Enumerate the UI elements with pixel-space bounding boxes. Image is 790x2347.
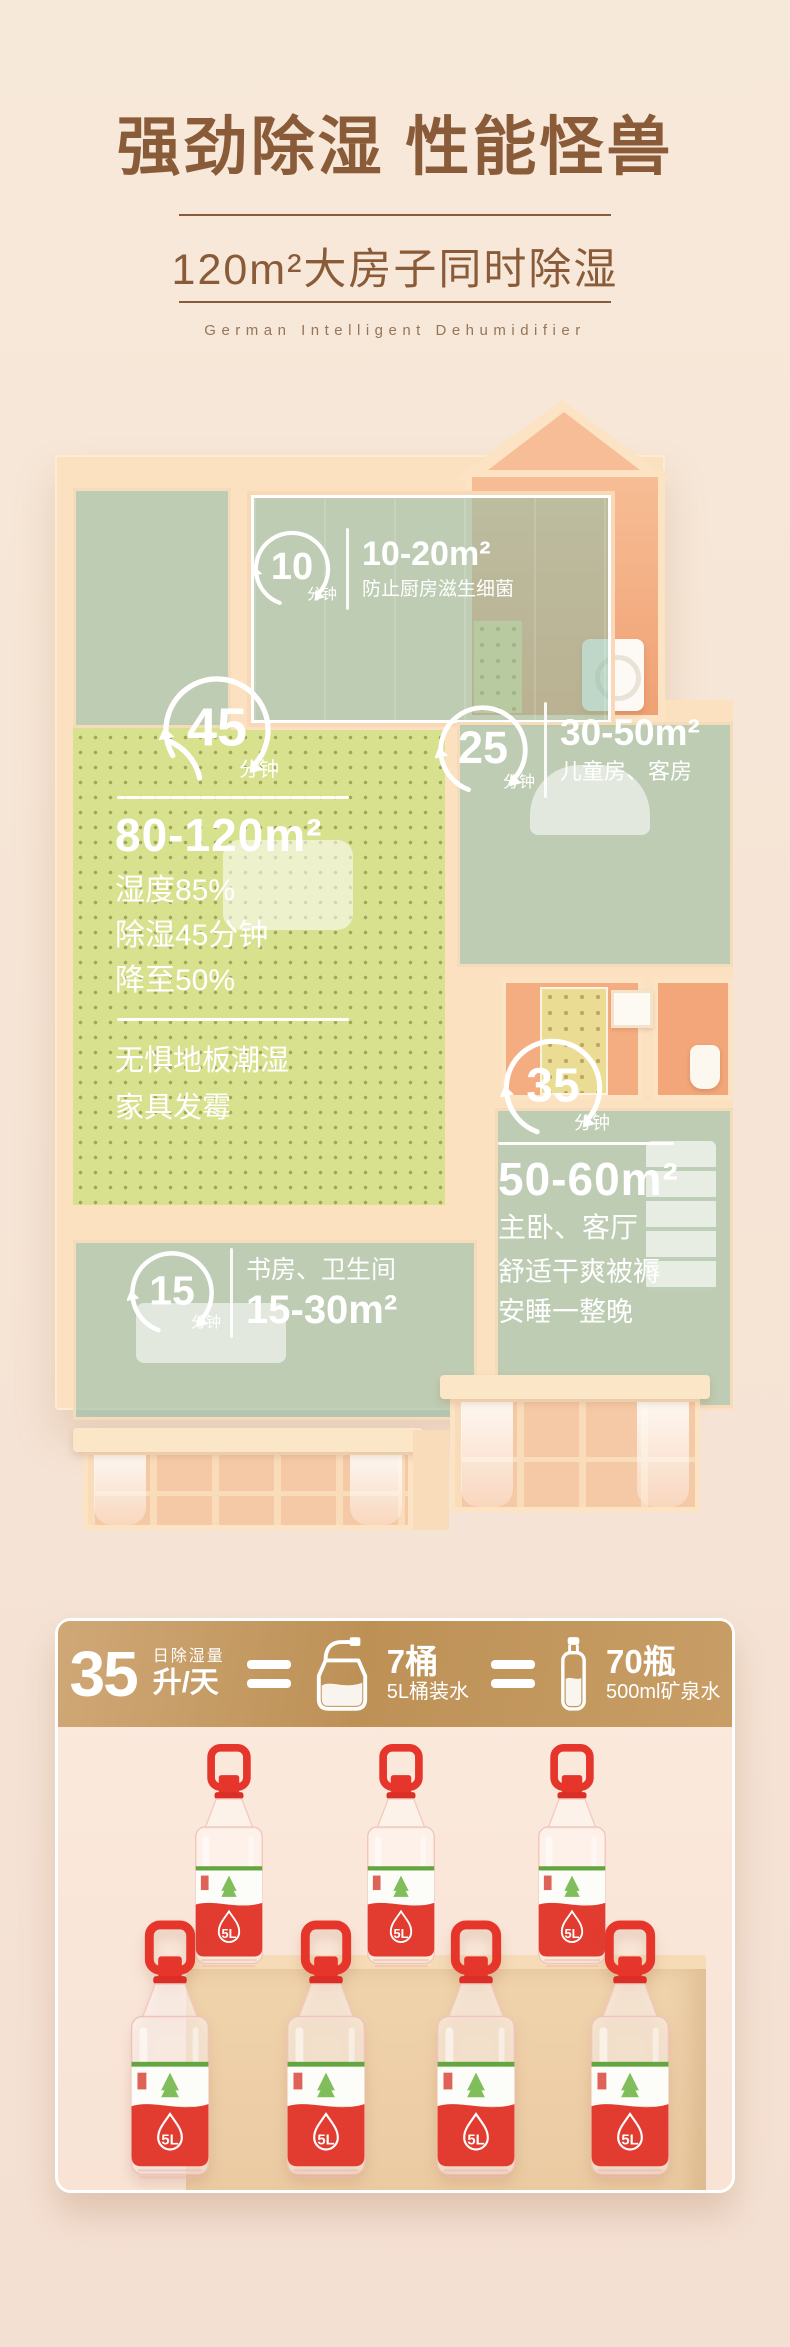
- capacity-label: 日除湿量: [153, 1648, 225, 1666]
- bathroom: [653, 978, 733, 1100]
- water-bottle-icon: [557, 1635, 590, 1713]
- annotation-study: 15 分钟 书房、卫生间 15-30m²: [127, 1248, 397, 1338]
- divider-top: [179, 214, 611, 216]
- annotation-rule: [117, 796, 349, 799]
- capacity-card: 35 日除湿量 升/天 7桶 5L桶装水: [55, 1618, 735, 2193]
- annotation-kids-room: 25 分钟 30-50m² 儿童房、客房: [435, 702, 700, 798]
- capacity-unit: 升/天: [153, 1667, 225, 1700]
- benefit-note: 安睡一整晚: [498, 1292, 633, 1332]
- timer-minutes: 15: [149, 1268, 195, 1315]
- water-jug-icon: [313, 1635, 371, 1713]
- equals-icon: [247, 1660, 291, 1688]
- page-title: 强劲除湿 性能怪兽: [0, 96, 790, 188]
- timer-minutes: 45: [187, 697, 247, 759]
- bottle-count: 70瓶: [606, 1644, 720, 1680]
- timer-icon-15min: 15 分钟: [127, 1248, 217, 1338]
- timer-icon-35min: 35 分钟: [500, 1035, 606, 1141]
- area-range: 30-50m²: [560, 713, 700, 753]
- capacity-header: 35 日除湿量 升/天 7桶 5L桶装水: [58, 1621, 732, 1727]
- result-stat: 降至50%: [115, 958, 235, 1003]
- timer-unit: 分钟: [191, 1311, 221, 1332]
- divider-bottom: [179, 301, 611, 303]
- tagline-english: German Intelligent Dehumidifier: [0, 322, 790, 339]
- equals-icon: [491, 1660, 535, 1688]
- benefit-note: 舒适干爽被褥: [498, 1252, 660, 1292]
- water-jug-5l: [585, 1917, 675, 2183]
- page-subtitle: 120m²大房子同时除湿: [0, 235, 790, 297]
- bottle-desc: 500ml矿泉水: [606, 1681, 720, 1704]
- water-jug-5l: [431, 1917, 521, 2183]
- facade-pillar: [413, 1430, 449, 1530]
- annotation-rule: [117, 1018, 349, 1021]
- area-desc: 主卧、客厅: [498, 1206, 638, 1246]
- annotation-divider: [230, 1248, 233, 1338]
- balcony-awning-right: [440, 1375, 710, 1399]
- jug-desc: 5L桶装水: [387, 1681, 469, 1704]
- area-desc: 儿童房、客房: [560, 758, 700, 787]
- water-jug-5l: [362, 1741, 440, 1971]
- daily-capacity-value: 35: [70, 1642, 137, 1706]
- floorplan-illustration: 10 分钟 10-20m² 防止厨房滋生细菌 45 分钟 80-120m² 湿度…: [55, 400, 740, 1530]
- balcony-awning-left: [73, 1428, 423, 1452]
- timer-minutes: 35: [526, 1058, 579, 1113]
- area-range: 50-60m²: [498, 1152, 679, 1206]
- benefit-note: 无惧地板潮湿: [115, 1038, 289, 1085]
- area-range: 10-20m²: [362, 536, 514, 573]
- area-range: 15-30m²: [246, 1289, 397, 1332]
- timer-unit: 分钟: [239, 753, 279, 782]
- water-jug-5l: [281, 1917, 371, 2183]
- toilet: [690, 1045, 720, 1089]
- curtain-right: [350, 1455, 402, 1525]
- annotation-rule: [498, 1142, 674, 1145]
- timer-icon-25min: 25 分钟: [435, 702, 531, 798]
- dehumidify-stat: 除湿45分钟: [115, 913, 268, 958]
- curtain-left: [461, 1402, 513, 1507]
- curtain-left: [94, 1455, 146, 1525]
- room-names: 书房、卫生间: [246, 1254, 397, 1287]
- timer-unit: 分钟: [503, 768, 535, 792]
- area-desc: 防止厨房滋生细菌: [362, 578, 514, 603]
- annotation-kitchen: 10 分钟 10-20m² 防止厨房滋生细菌: [251, 528, 514, 610]
- timer-minutes: 25: [458, 722, 508, 774]
- timer-icon-10min: 10 分钟: [251, 528, 333, 610]
- timer-unit: 分钟: [307, 583, 337, 604]
- benefit-note: 家具发霉: [115, 1085, 231, 1132]
- annotation-divider: [346, 528, 349, 610]
- bottles-stage: [58, 1727, 732, 2190]
- dehumidifier-poster: 强劲除湿 性能怪兽 120m²大房子同时除湿 German Intelligen…: [0, 0, 790, 2347]
- area-range: 80-120m²: [115, 808, 322, 862]
- humidity-stat: 湿度85%: [115, 868, 235, 913]
- jug-count: 7桶: [387, 1644, 469, 1680]
- timer-icon-45min: 45 分钟: [159, 672, 275, 788]
- balcony-right: [450, 1397, 700, 1512]
- water-jug-5l: [125, 1917, 215, 2183]
- wall-picture-frame: [611, 990, 653, 1028]
- balcony-left: [83, 1450, 413, 1530]
- curtain-right: [637, 1402, 689, 1507]
- annotation-divider: [544, 702, 547, 798]
- timer-unit: 分钟: [574, 1109, 610, 1135]
